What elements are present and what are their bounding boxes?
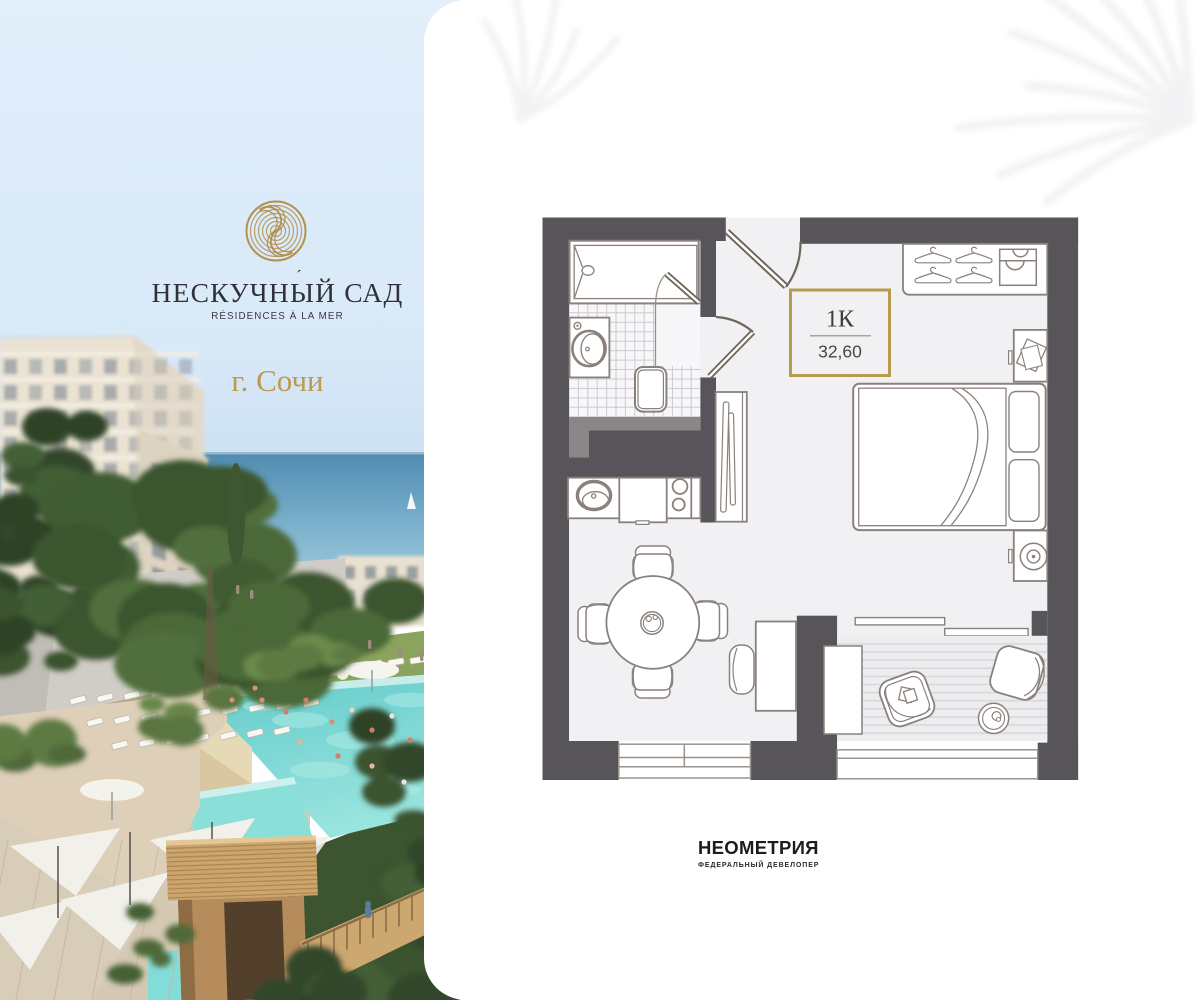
svg-text:1К: 1К [826, 307, 855, 333]
svg-text:32,60: 32,60 [818, 342, 862, 362]
